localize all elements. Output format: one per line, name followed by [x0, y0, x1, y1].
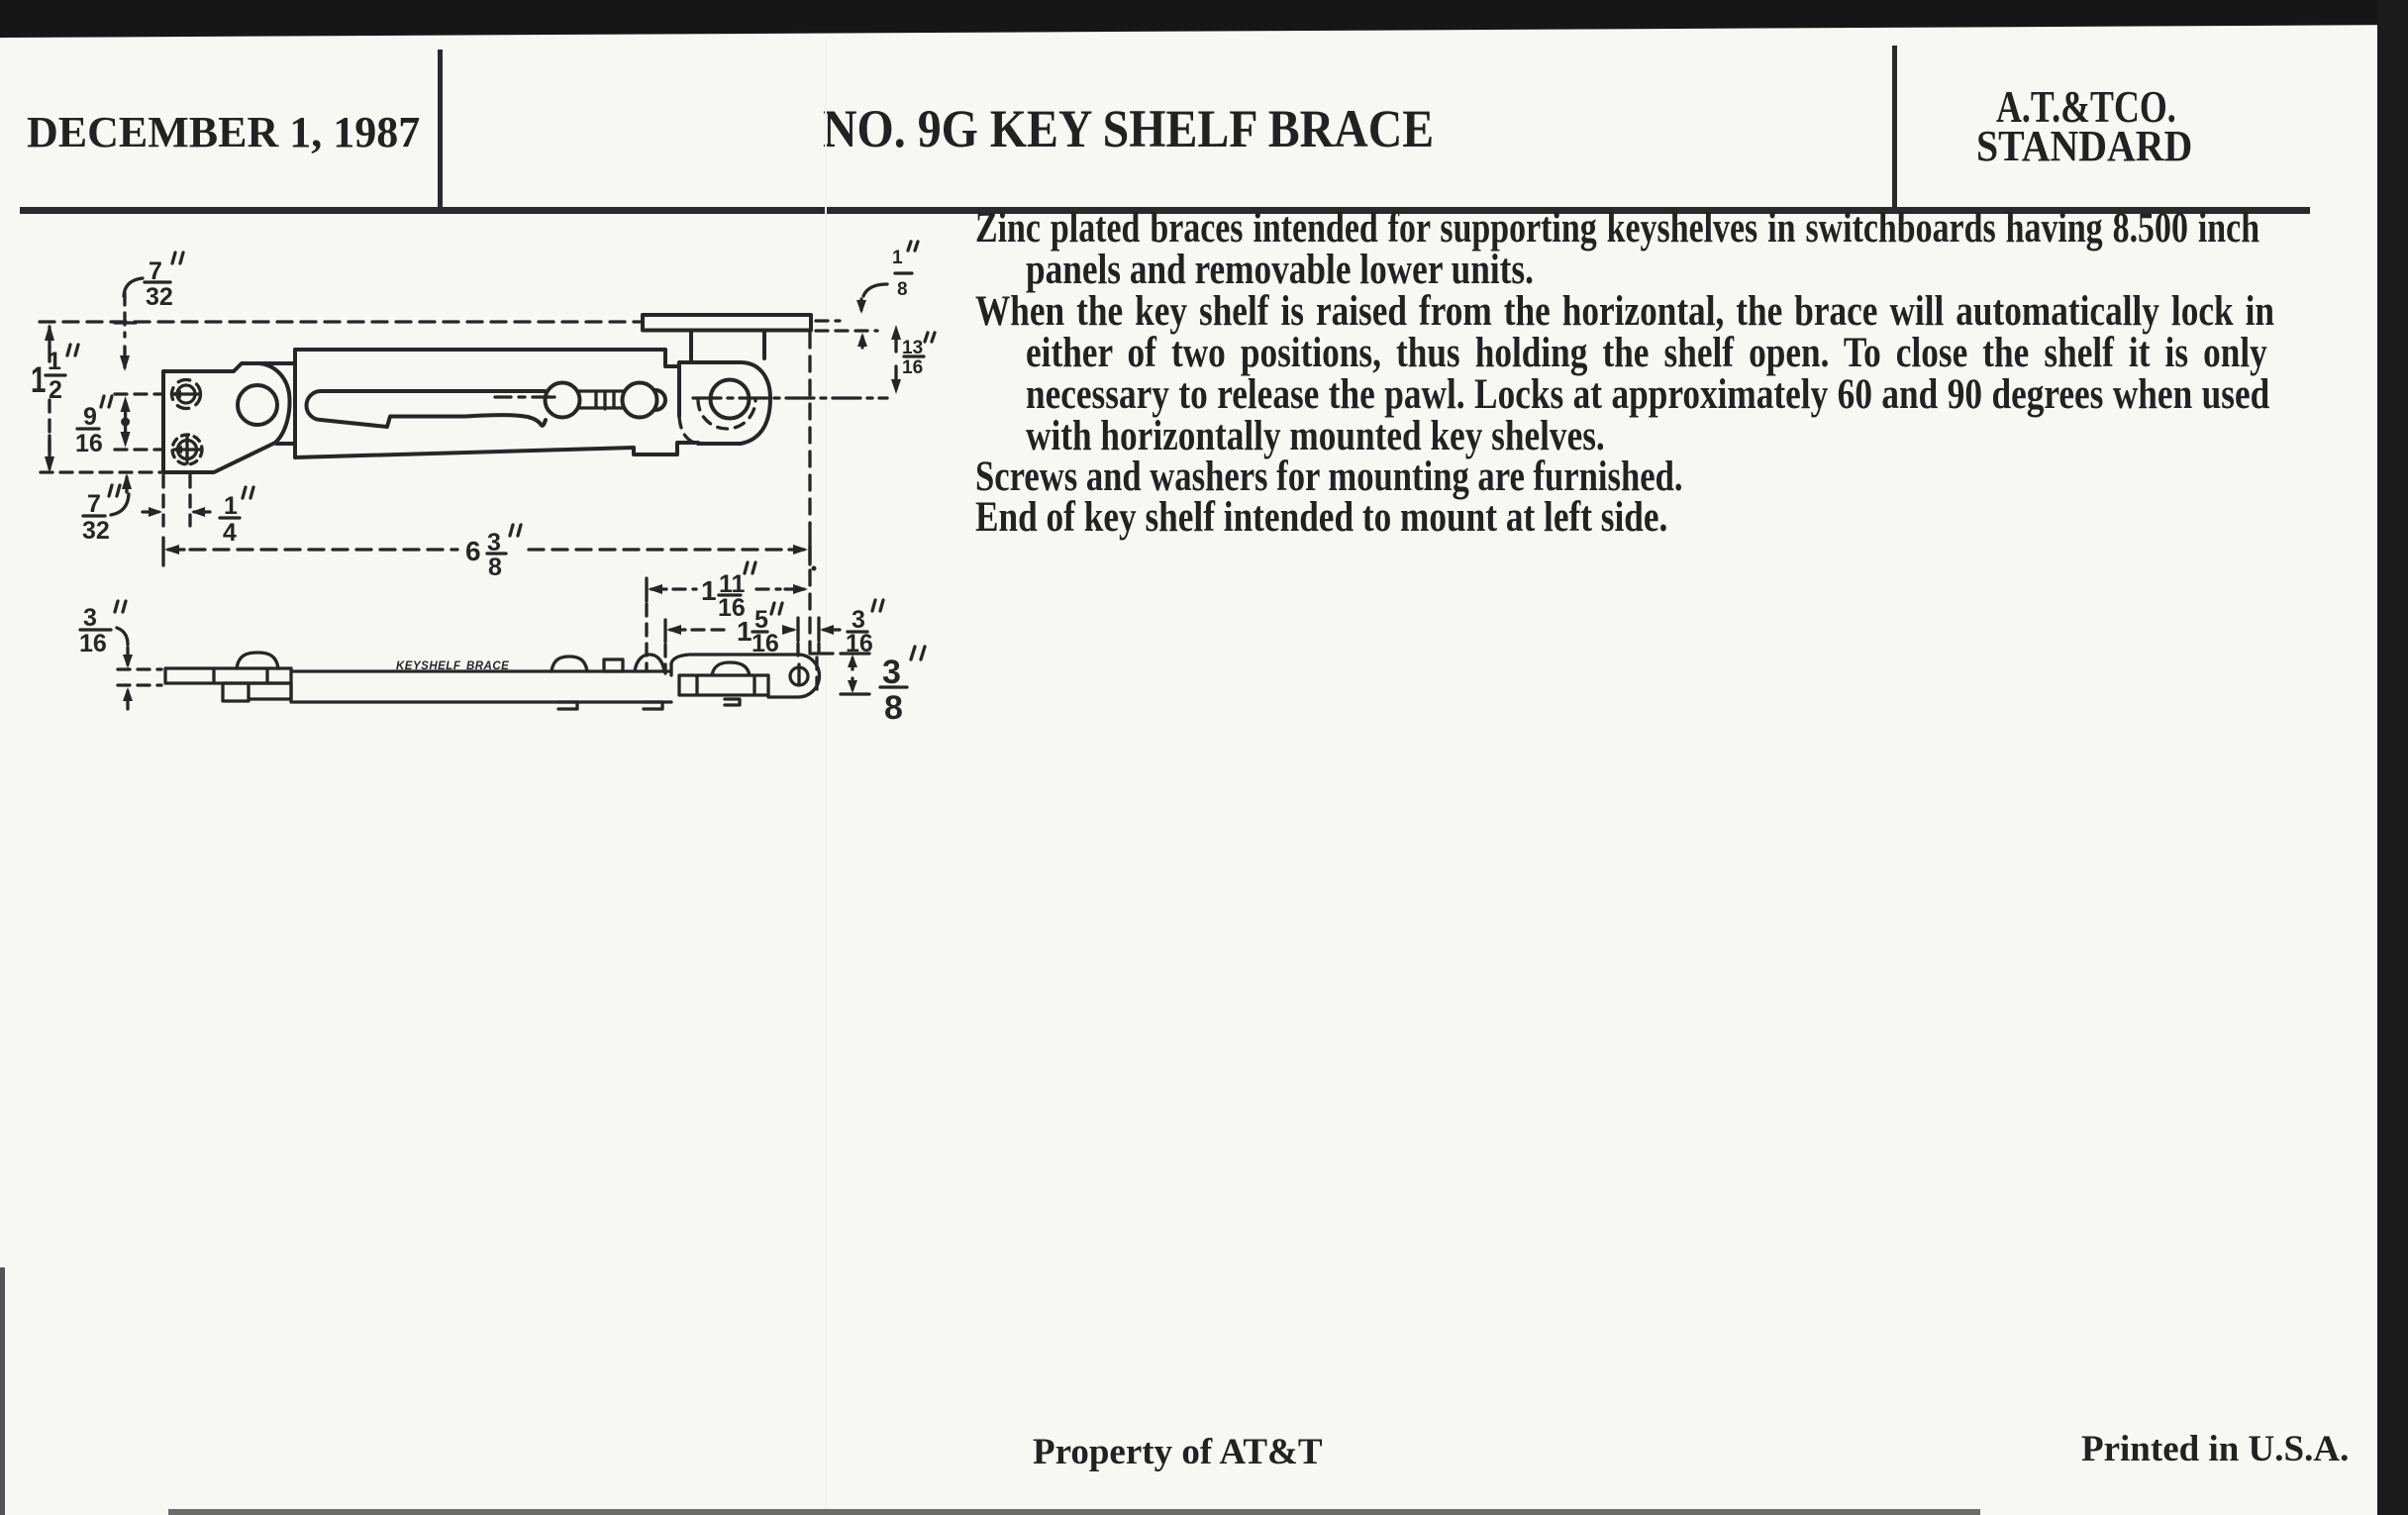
svg-text:8: 8: [488, 554, 502, 581]
svg-text:16: 16: [75, 430, 103, 457]
svg-text:1: 1: [892, 248, 903, 268]
svg-text:3: 3: [882, 654, 901, 691]
svg-text:16: 16: [79, 630, 107, 657]
svg-text:32: 32: [146, 283, 173, 311]
svg-text:1: 1: [737, 616, 752, 647]
svg-text:4: 4: [223, 519, 237, 547]
svg-text:3: 3: [83, 604, 97, 632]
svg-text:6: 6: [465, 536, 481, 566]
svg-text:1: 1: [48, 348, 61, 375]
svg-text:2: 2: [49, 376, 62, 404]
svg-text:1: 1: [224, 492, 238, 520]
svg-text:9: 9: [83, 403, 97, 431]
svg-text:1: 1: [701, 575, 717, 606]
svg-text:8: 8: [884, 689, 903, 727]
svg-text:KEYSHELF BRACE: KEYSHELF BRACE: [396, 660, 509, 672]
svg-text:7: 7: [87, 490, 101, 518]
svg-text:32: 32: [82, 517, 110, 545]
svg-text:16: 16: [902, 357, 923, 378]
svg-text:1: 1: [31, 358, 46, 400]
svg-text:8: 8: [897, 279, 908, 300]
